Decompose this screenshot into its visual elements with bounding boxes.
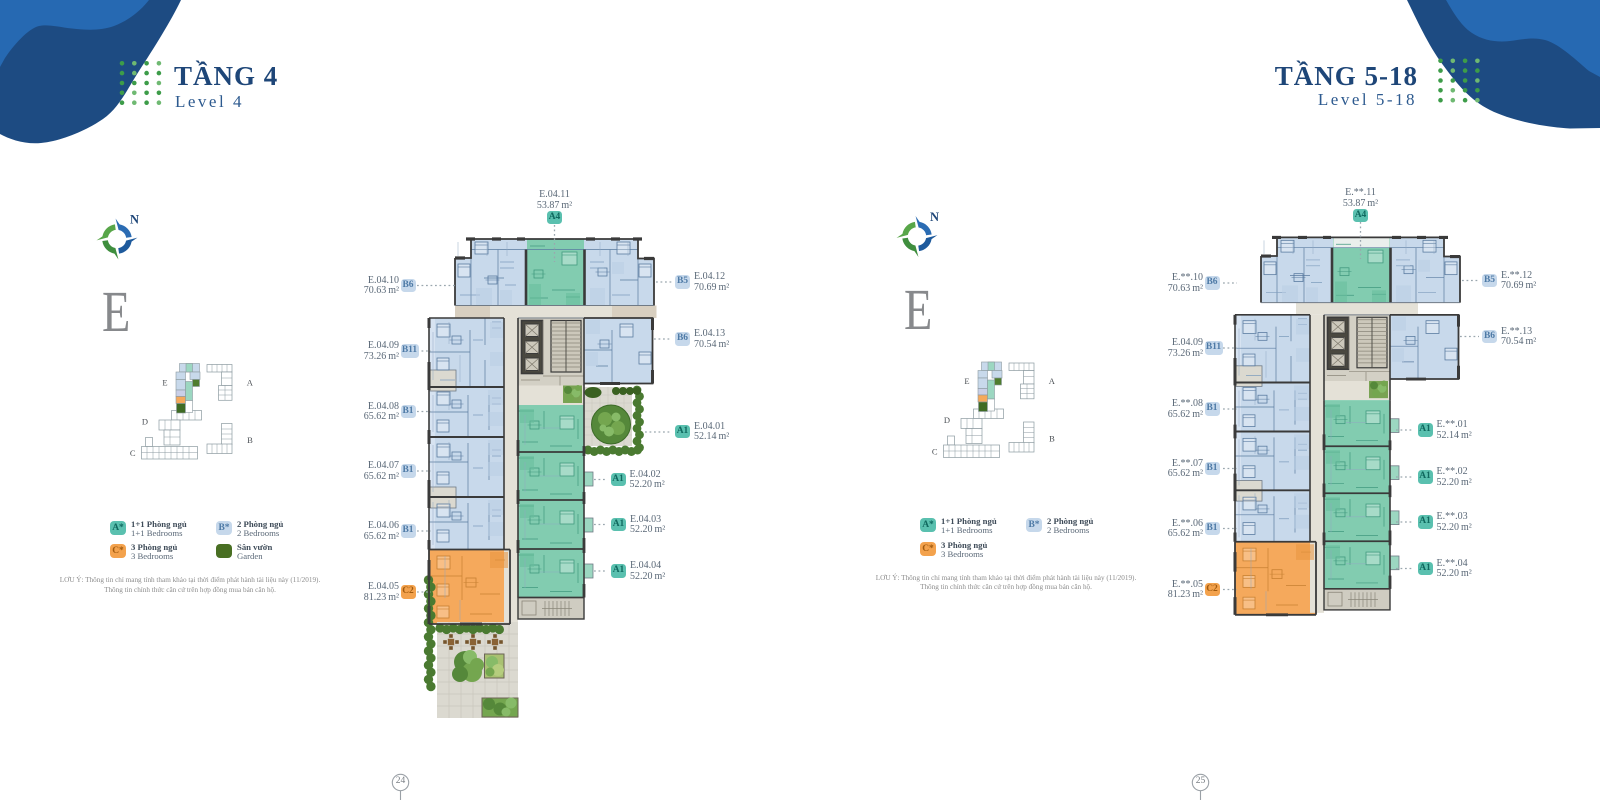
svg-text:A: A <box>247 378 254 388</box>
svg-text:D: D <box>944 415 950 425</box>
svg-text:C: C <box>932 446 938 456</box>
svg-text:B: B <box>1049 433 1055 443</box>
svg-text:N: N <box>130 213 139 227</box>
svg-text:E: E <box>964 376 969 386</box>
svg-text:A: A <box>1049 376 1056 386</box>
svg-text:N: N <box>930 210 939 224</box>
svg-text:C: C <box>130 448 136 458</box>
svg-text:E: E <box>162 377 167 387</box>
svg-text:B: B <box>247 435 253 445</box>
svg-text:D: D <box>142 417 148 427</box>
